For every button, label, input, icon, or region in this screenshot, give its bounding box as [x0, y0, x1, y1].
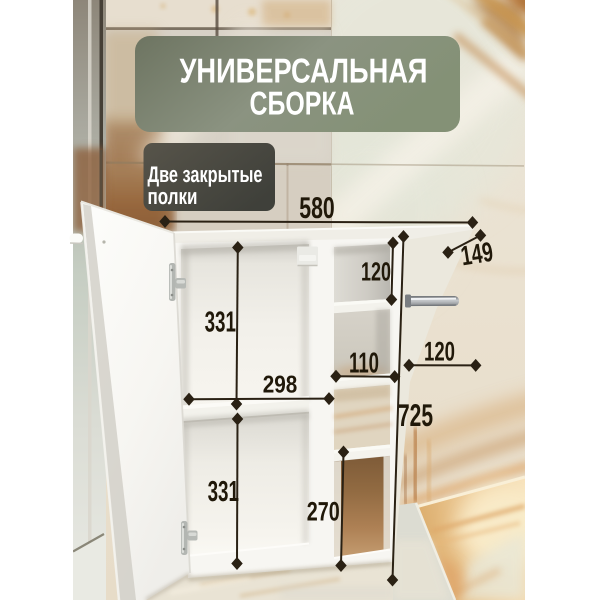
- svg-text:270: 270: [307, 497, 340, 527]
- svg-text:298: 298: [263, 371, 298, 398]
- svg-text:110: 110: [349, 348, 379, 380]
- svg-text:120: 120: [361, 257, 391, 287]
- svg-text:580: 580: [299, 192, 335, 225]
- svg-text:149: 149: [459, 236, 495, 272]
- svg-text:полки: полки: [148, 184, 198, 209]
- svg-text:331: 331: [208, 476, 239, 508]
- svg-text:725: 725: [398, 397, 433, 433]
- svg-text:СБОРКА: СБОРКА: [250, 85, 355, 122]
- svg-text:331: 331: [205, 306, 236, 338]
- svg-text:120: 120: [424, 336, 455, 366]
